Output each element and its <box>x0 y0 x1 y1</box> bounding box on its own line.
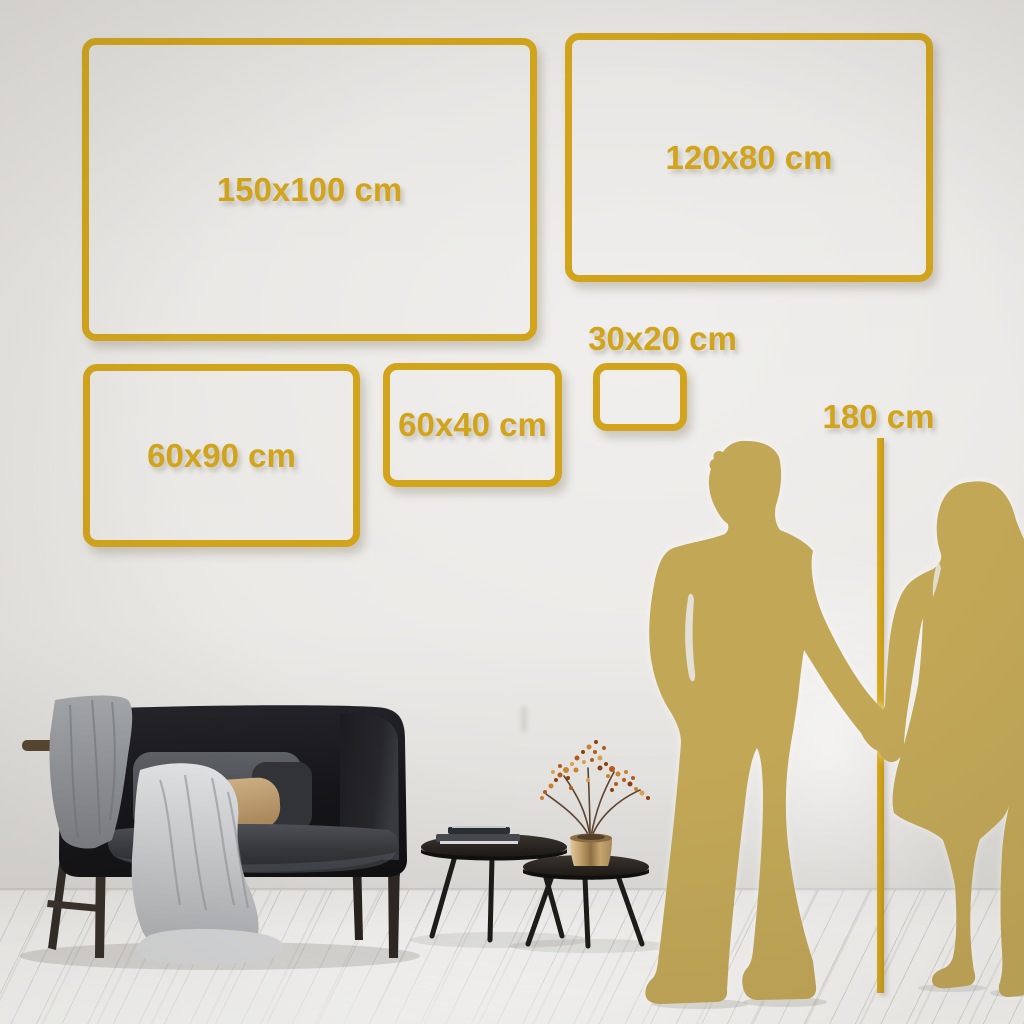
books-stack <box>436 826 520 844</box>
plant-berries <box>540 740 650 800</box>
sofa <box>22 696 407 965</box>
size-box-60x90: 60x90 cm <box>83 364 360 547</box>
floor-shadows <box>20 932 670 970</box>
size-label-60x90: 60x90 cm <box>147 437 296 475</box>
size-box-60x40: 60x40 cm <box>383 363 562 487</box>
furniture-graphic <box>0 680 700 1024</box>
size-box-120x80: 120x80 cm <box>565 33 933 282</box>
size-label-60x40: 60x40 cm <box>398 406 547 444</box>
size-box-150x100: 150x100 cm <box>82 38 537 341</box>
size-label-30x20-wrap: 30x20 cm <box>575 320 750 358</box>
throw-floor-pile <box>138 929 284 965</box>
size-box-30x20 <box>593 363 687 431</box>
size-label-120x80: 120x80 cm <box>666 139 833 177</box>
plant-branches <box>546 768 640 836</box>
size-label-30x20: 30x20 cm <box>588 320 737 357</box>
man-silhouette <box>645 441 896 1004</box>
couple-silhouette <box>640 430 1024 1010</box>
coffee-tables <box>421 740 650 946</box>
size-label-150x100: 150x100 cm <box>217 171 402 209</box>
woman-silhouette <box>876 481 1024 997</box>
size-guide-scene: 150x100 cm 120x80 cm 60x90 cm 60x40 cm 3… <box>0 0 1024 1024</box>
